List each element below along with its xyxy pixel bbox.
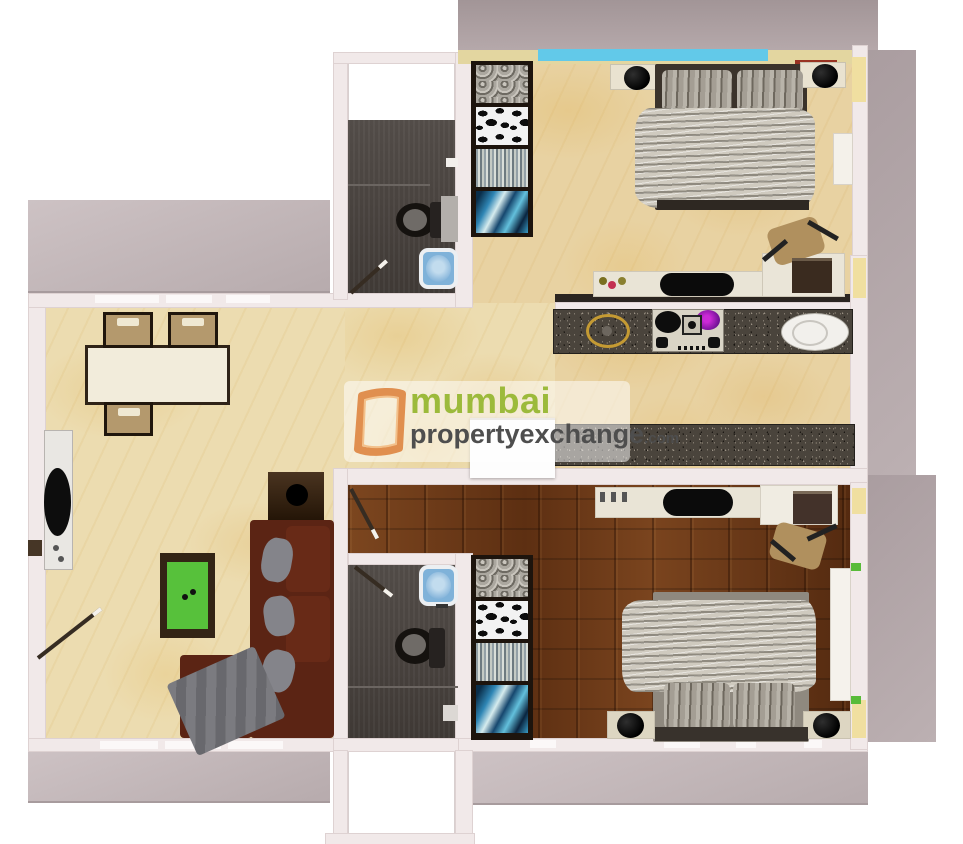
wardrobe-shelf-linen [476,65,528,103]
bedroom2-bed-foot [655,727,808,741]
coffee-table-decor-2 [190,589,196,595]
accent-yellow-bedroom1-right [852,57,866,102]
bedroom2-duvet [622,600,816,692]
bedroom2-lamp-right [813,713,840,738]
bedroom2-cupboard-right [830,568,851,701]
basin-bowl [426,255,451,282]
stove-pan [655,311,681,333]
bedroom1-lamp-right [812,64,838,88]
toilet-bowl [402,634,426,656]
bathroom1-soap [446,158,458,167]
floor-plan: mumbai propertyexchange.com [0,0,963,844]
tv-cabinet-speaker [286,484,308,506]
basin-bowl [426,572,451,599]
dining-chair-3 [104,402,153,436]
terrace-right-lower [866,475,936,742]
dining-chair-2 [168,312,218,348]
terrace-top [458,0,878,52]
console-fruit-2 [608,281,616,289]
accent-yellow-bedroom2-bottom [852,700,866,738]
stove-knob-right [708,337,720,348]
accent-yellow-bedroom2-top [852,488,866,514]
bedroom1-cupboard-right [833,133,853,185]
balcony-bottom-right [472,750,868,805]
bedroom1-wardrobe [471,61,533,237]
green-accent-top [851,563,861,571]
bathroom2-shelf [443,705,458,721]
bathroom1-towel-shelf [441,196,458,242]
bedroom2-tv [663,489,733,516]
chair-slat [182,318,204,326]
window-living-top-1 [95,295,159,303]
wardrobe-shelf-linen [476,559,528,597]
stove-button-row [678,346,706,350]
window-living-bottom-3 [228,741,283,749]
bedroom1-laptop [792,258,832,293]
wardrobe-shelf-pattern [476,601,528,639]
console-fruit-1 [599,277,607,285]
dining-table [85,345,230,405]
green-accent-bottom [851,696,861,704]
bedroom2-console-knobs [600,492,630,502]
window-living-top-2 [166,295,212,303]
console-fruit-3 [618,277,626,285]
watermark-city-text: mumbai [410,380,551,422]
watermark-name-text: propertyexchange.com [410,419,679,450]
wall-duct-right [455,750,473,843]
entry-door-frame [28,540,42,556]
wardrobe-shelf-pattern [476,107,528,145]
bedroom2-lamp-left [617,713,644,738]
terrace-right-upper [866,50,916,475]
bedroom1-window-blue [538,49,768,61]
wall-bath2-bottom [333,738,473,752]
bedroom2-wardrobe [471,555,533,740]
watermark-tld: .com [644,430,679,447]
bedroom2-laptop [793,491,832,524]
wall-mid-horizontal [333,468,868,485]
wardrobe-shelf-blue [476,685,528,733]
stove-knob-left [656,337,668,348]
bedroom1-lamp-left [624,66,650,90]
chair-slat [117,318,139,326]
bathroom1-duct [348,63,455,121]
bedroom1-duvet [635,108,815,208]
wardrobe-shelf-striped [476,643,528,681]
dining-chair-1 [103,312,153,348]
toilet-bowl [403,209,427,231]
wall-bath1-left [333,52,348,300]
stove-burner-dot [688,321,696,329]
wall-mid-left-vertical [333,468,348,750]
wall-duct-bottom [325,833,475,844]
bedroom1-pillow-right [737,70,803,112]
bathroom1-floor-seam [348,184,430,186]
watermark-name: propertyexchange [410,419,644,449]
bedroom1-tv [660,273,734,296]
bedroom2-pillow-left [664,683,730,729]
bathroom2-faucet [436,604,448,608]
window-bedroom2-1 [530,740,556,748]
wardrobe-shelf-blue [476,191,528,233]
wall-duct-left [333,750,348,843]
balcony-bottom-left [28,750,330,803]
bedroom2-pillow-right [733,683,795,729]
kitchen-sink-oval-bowl [792,320,828,346]
coffee-table-decor-1 [182,594,188,600]
wardrobe-shelf-striped [476,149,528,187]
bedroom1-bed-foot [657,200,809,210]
chair-slat [118,408,140,416]
bathroom1-basin [419,248,458,289]
sideboard-knob-2 [58,556,64,562]
wall-bath2-top [348,553,458,565]
sofa-cushion-1 [286,526,330,592]
kitchen-sink-drain [602,326,612,336]
balcony-top-left [28,200,330,293]
brand-logo-icon [350,386,408,463]
window-living-top-3 [226,295,270,303]
bottom-duct [348,750,455,834]
accent-yellow-kitchen-right [853,258,866,298]
bedroom1-pillow-left [662,70,732,112]
bathroom2-cistern [429,628,445,668]
bathroom2-basin [419,565,458,606]
wall-bath1-top [333,52,473,64]
window-living-bottom-1 [100,741,158,749]
bathroom2-floor-seam [348,686,458,688]
sideboard-knob-1 [53,545,59,551]
sideboard-basin-decor [44,468,71,536]
